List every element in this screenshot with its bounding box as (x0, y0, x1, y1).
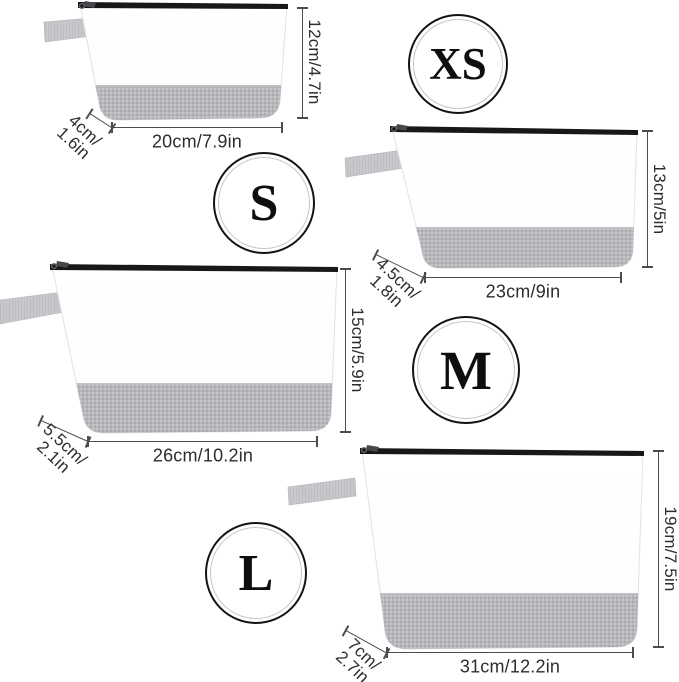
height-dimension-line-l (658, 451, 659, 647)
width-dimension-line-m (88, 441, 317, 442)
fabric-strip (380, 227, 645, 280)
width-dimension-label-s: 23cm/9in (486, 282, 561, 303)
height-dimension-label-m: 15cm/5.9in (347, 307, 367, 392)
badge-letter-m: M (414, 318, 518, 422)
size-badge-m: M (412, 316, 520, 424)
size-badge-l: L (205, 522, 307, 624)
width-dimension-label-m: 26cm/10.2in (153, 446, 253, 467)
width-dimension-line-l (387, 652, 633, 653)
size-badge-s: S (213, 152, 315, 254)
height-dimension-label-xs: 12cm/4.7in (304, 19, 324, 104)
product-size-diagram: 12cm/4.7in 20cm/7.9in 4cm/ 1.6in XS 13cm… (0, 0, 679, 682)
badge-letter-xs: XS (410, 16, 506, 112)
hang-tab (0, 292, 64, 324)
hang-tab (345, 150, 404, 177)
zipper (78, 2, 288, 9)
badge-letter-l: L (207, 524, 305, 622)
height-dimension-label-l: 19cm/7.5in (660, 506, 679, 591)
height-dimension-line-m (345, 269, 346, 432)
width-dimension-line-xs (112, 127, 282, 128)
height-dimension-label-s: 13cm/5in (649, 164, 669, 235)
size-badge-xs: XS (408, 14, 508, 114)
bag-xs-graphic (30, 0, 310, 130)
hang-tab (288, 478, 356, 505)
bag-l-graphic (278, 443, 668, 658)
width-dimension-label-l: 31cm/12.2in (460, 657, 560, 678)
width-dimension-line-s (425, 277, 621, 278)
width-dimension-label-xs: 20cm/7.9in (152, 132, 242, 153)
height-dimension-line-xs (302, 8, 303, 118)
badge-letter-s: S (215, 154, 313, 252)
height-dimension-line-s (647, 131, 648, 267)
